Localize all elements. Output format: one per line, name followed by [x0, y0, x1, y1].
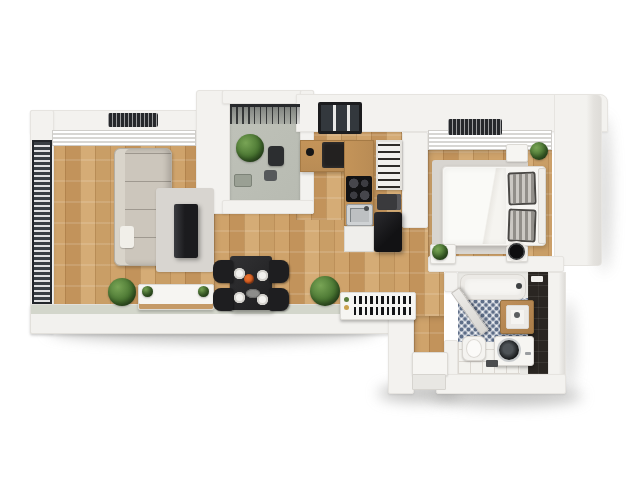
ac-grille	[448, 119, 502, 135]
entry-threshold	[412, 374, 446, 390]
plate	[234, 292, 245, 303]
potted-plant	[198, 286, 209, 297]
wall-right-exterior	[554, 94, 602, 266]
wall-bathroom-bottom	[436, 374, 566, 394]
toiletries	[531, 276, 543, 282]
bath-faucet	[516, 283, 522, 289]
dining-chair	[269, 260, 289, 283]
balcony-railing	[230, 104, 300, 124]
potted-plant	[108, 278, 136, 306]
orange-fruit-bowl	[244, 274, 254, 284]
table-fan	[508, 243, 525, 260]
floor-drain	[486, 360, 498, 367]
dining-chair	[213, 260, 233, 283]
dining-chair	[213, 288, 233, 311]
floor-plan-render	[0, 0, 640, 480]
kitchen-lower-cabinet	[344, 226, 374, 252]
refrigerator	[374, 212, 402, 252]
serving-tray	[246, 289, 260, 298]
ladder-shelf	[376, 140, 402, 190]
wall-entry-nook	[388, 314, 414, 394]
outdoor-chair	[268, 146, 284, 166]
planter-box	[234, 174, 252, 187]
plate	[257, 270, 268, 281]
wall-kitchen-bedroom	[402, 132, 428, 228]
small-decor-item	[344, 297, 349, 302]
entry-door-mat	[412, 352, 448, 376]
bottle-row	[354, 307, 412, 315]
kettle	[306, 148, 314, 156]
potted-plant	[530, 142, 548, 160]
washer-controls	[525, 352, 531, 355]
tv-unit	[174, 204, 198, 258]
sofa-throw-pillow	[120, 226, 134, 248]
potted-plant	[142, 286, 153, 297]
window-with-blinds	[32, 140, 52, 304]
outdoor-table	[264, 170, 277, 181]
wall-bathroom-right	[548, 272, 566, 376]
dining-chair	[269, 288, 289, 311]
skylight-window	[318, 102, 362, 134]
pillow	[507, 209, 536, 243]
toilet-lid	[466, 339, 482, 358]
washer-door	[499, 340, 519, 360]
air-vent-grille	[108, 113, 158, 127]
window-blinds	[52, 130, 196, 146]
faucet	[364, 206, 369, 211]
bed-duvet	[444, 168, 506, 244]
potted-tree	[236, 134, 264, 162]
bottle-row	[354, 296, 412, 304]
microwave	[377, 194, 401, 210]
faucet	[514, 312, 520, 318]
cooktop	[346, 176, 372, 202]
headboard	[538, 168, 546, 244]
potted-plant	[310, 276, 340, 306]
pillow	[507, 172, 536, 206]
small-decor-item	[344, 305, 349, 310]
potted-plant	[432, 244, 448, 260]
balcony-parapet-bottom	[222, 200, 314, 214]
nightstand	[506, 144, 528, 162]
